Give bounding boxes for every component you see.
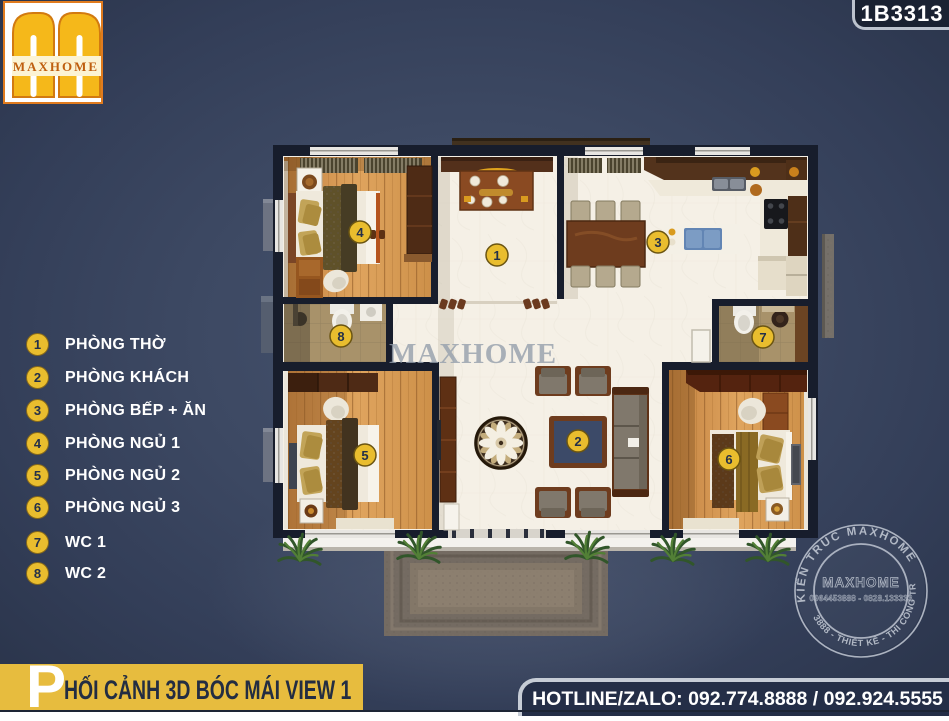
svg-text:2: 2 <box>574 434 581 449</box>
svg-text:1: 1 <box>493 248 500 263</box>
svg-text:8: 8 <box>337 329 344 344</box>
svg-text:MAXHOME: MAXHOME <box>822 575 900 590</box>
svg-text:4: 4 <box>356 225 364 240</box>
svg-text:5: 5 <box>361 448 368 463</box>
svg-text:6: 6 <box>725 452 732 467</box>
svg-text:3: 3 <box>654 235 661 250</box>
svg-text:7: 7 <box>759 330 766 345</box>
svg-text:MAXHOME: MAXHOME <box>389 338 557 370</box>
svg-text:0964453888 - 0828.133333: 0964453888 - 0828.133333 <box>809 594 912 603</box>
